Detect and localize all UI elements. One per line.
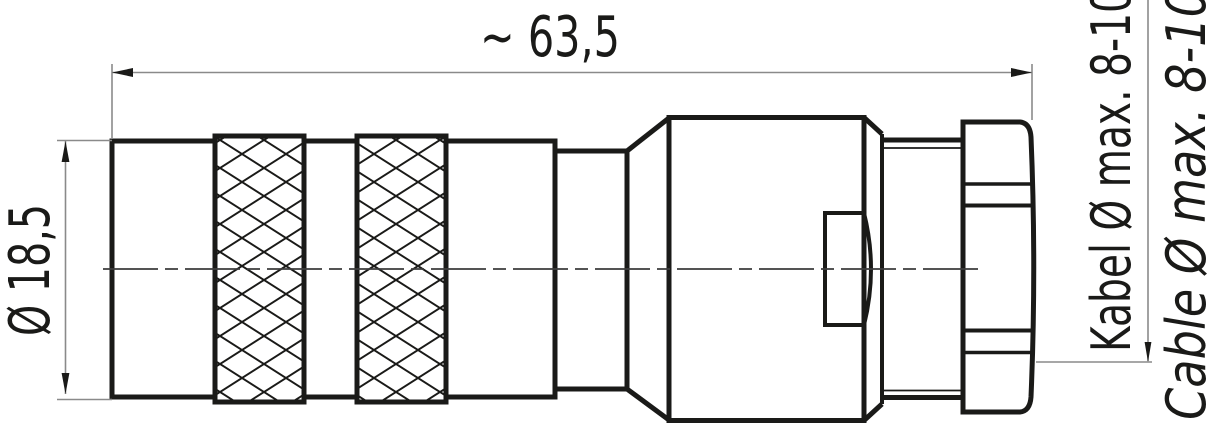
coupling-nut xyxy=(963,122,1034,412)
taper-bottom-edge xyxy=(627,389,669,420)
step-section xyxy=(555,151,627,389)
cable-arrowhead xyxy=(1145,342,1152,362)
arrowhead-top xyxy=(62,141,70,162)
technical-drawing-canvas: ~ 63,5 Ø 18,5 Kabel Ø max. 8-10 Cable Ø … xyxy=(0,0,1211,424)
arrowhead-bottom xyxy=(62,373,70,394)
dimension-cable: Kabel Ø max. 8-10 Cable Ø max. 8-10 xyxy=(1036,0,1211,420)
dimension-diameter: Ø 18,5 xyxy=(0,141,112,400)
chamfer-top xyxy=(864,118,882,135)
nut-outline xyxy=(963,122,1034,412)
chamfer-bottom xyxy=(864,404,882,421)
arrowhead-right xyxy=(1011,68,1032,77)
cable-label-german: Kabel Ø max. 8-10 xyxy=(1080,0,1143,352)
cable-label-english: Cable Ø max. 8-10 xyxy=(1155,0,1211,420)
dimension-overall-length: ~ 63,5 xyxy=(112,5,1032,138)
diameter-value: Ø 18,5 xyxy=(0,204,63,336)
arrowhead-left xyxy=(112,68,133,77)
overall-length-value: ~ 63,5 xyxy=(480,5,620,70)
connector-drawing: ~ 63,5 Ø 18,5 Kabel Ø max. 8-10 Cable Ø … xyxy=(0,0,1211,424)
taper-top-edge xyxy=(627,118,669,151)
